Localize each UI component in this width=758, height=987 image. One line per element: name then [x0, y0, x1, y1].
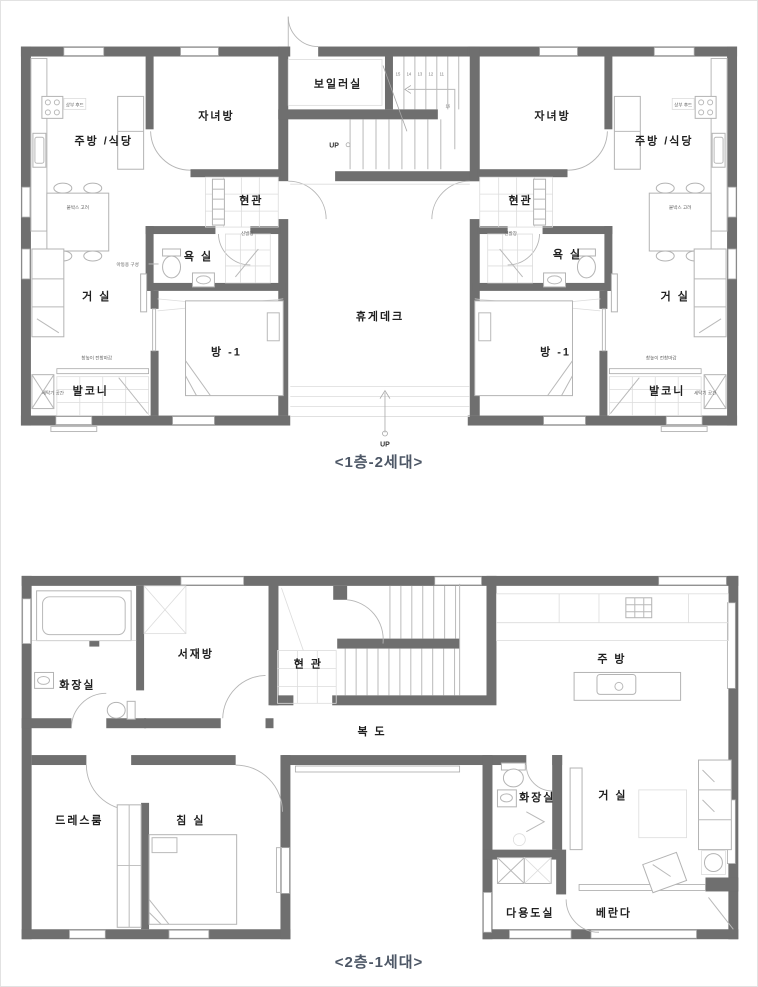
stair-number: 12 — [429, 71, 434, 76]
room-label-balcony-left: 발코니 — [73, 384, 109, 398]
stair-number: 15 — [396, 71, 401, 76]
room-labels-first-floor: 주방 /식당 자녀방 보일러실 현관 욕 실 거 실 방 -1 발코니 휴게데크… — [73, 76, 694, 397]
second-floor-plan: 화장실 서재방 현 관 복 도 주 방 드레스룸 침 실 화장실 거 실 다용도… — [1, 556, 757, 986]
room-label-utility: 다용도실 — [506, 905, 554, 919]
room-label-living-left: 거 실 — [82, 289, 111, 303]
room-label-entrance-left: 현관 — [239, 193, 263, 207]
label-shoe-cabinet-right: 신발장 — [504, 230, 517, 236]
room-label-kitchen-right: 주방 /식당 — [635, 133, 693, 147]
room-label-entrance-right: 현관 — [509, 193, 533, 207]
room-label-kids-left: 자녀방 — [198, 108, 234, 122]
label-laundry-left: 세탁기 공간 — [42, 390, 65, 397]
first-floor-caption: <1층-2세대> — [1, 451, 757, 472]
room-label-boiler: 보일러실 — [314, 76, 362, 90]
floorplan-document: 15 14 13 12 11 16 UP UP — [0, 0, 758, 987]
label-shoe-cabinet-left: 신발장 — [241, 230, 254, 236]
room-label-deck: 휴게데크 — [356, 309, 404, 323]
room-label-corridor: 복 도 — [357, 724, 386, 738]
annotation-kids-config: 아동용 구성 — [116, 261, 138, 268]
room-label-kitchen: 주 방 — [597, 652, 626, 666]
room-label-living-right: 거 실 — [661, 289, 690, 303]
label-laundry-right: 세탁기 공간 — [694, 390, 717, 397]
room-label-living: 거 실 — [598, 788, 627, 802]
second-floor-caption: <2층-1세대> — [1, 951, 757, 972]
room-label-kitchen-left: 주방 /식당 — [75, 133, 133, 147]
room-label-kids-right: 자녀방 — [534, 108, 570, 122]
room-label-bath-left: 욕 실 — [184, 249, 213, 263]
annotation-table-note-left: 붙박스 고려 — [67, 204, 89, 211]
room-label-bath-right: 욕 실 — [553, 247, 582, 261]
first-floor-plan: 15 14 13 12 11 16 UP UP — [1, 1, 757, 501]
room-label-room1-left: 방 -1 — [211, 345, 242, 359]
annotation-window-finish-left: 창높이 전창마감 — [81, 355, 113, 362]
room-label-toilet-lower: 화장실 — [519, 790, 555, 804]
stair-landing-number: 16 — [445, 103, 450, 108]
stair-number: 13 — [418, 71, 423, 76]
annotation-table-note-right: 붙박스 고려 — [669, 204, 691, 211]
room-label-room1-right: 방 -1 — [540, 345, 571, 359]
room-label-balcony-right: 발코니 — [649, 384, 685, 398]
annotation-hood-left: 상부 후드 — [66, 101, 84, 108]
room-label-study: 서재방 — [178, 647, 214, 661]
stair-number: 14 — [407, 71, 412, 76]
room-label-veranda: 베란다 — [596, 905, 632, 919]
room-label-bedroom: 침 실 — [176, 813, 205, 827]
annotation-hood-right: 상부 후드 — [674, 101, 692, 108]
stair-up-label: UP — [329, 142, 339, 149]
annotation-window-finish-right: 창높이 전창마감 — [646, 355, 678, 362]
room-label-dressroom: 드레스룸 — [55, 813, 103, 827]
room-label-entrance: 현 관 — [294, 656, 323, 670]
deck-up-label: UP — [380, 441, 390, 448]
room-label-toilet-upper: 화장실 — [59, 677, 95, 691]
stair-number: 11 — [440, 71, 445, 76]
